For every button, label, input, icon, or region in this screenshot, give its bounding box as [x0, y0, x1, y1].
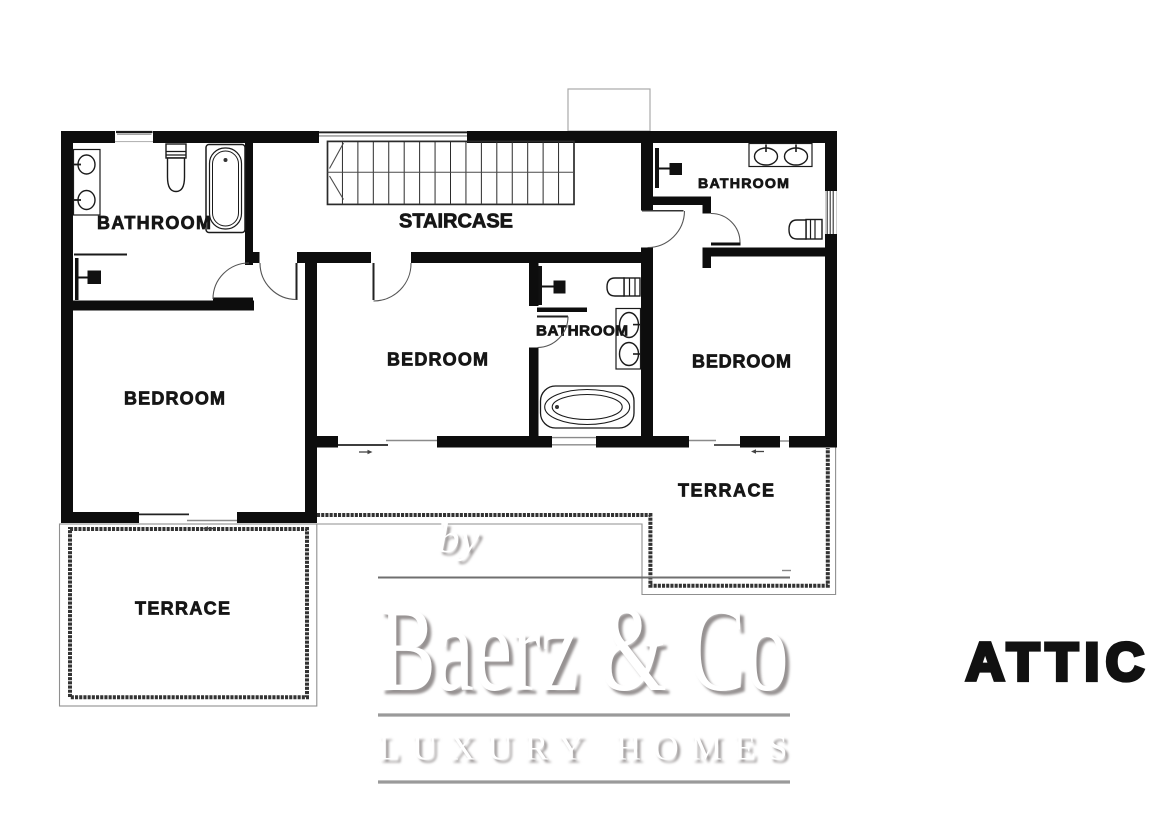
svg-text:Baerz & Co: Baerz & Co — [379, 582, 789, 717]
svg-text:BEDROOM: BEDROOM — [387, 350, 488, 370]
svg-text:BEDROOM: BEDROOM — [124, 389, 225, 409]
svg-text:BATHROOM: BATHROOM — [97, 213, 211, 233]
svg-text:TERRACE: TERRACE — [135, 599, 230, 619]
svg-text:TERRACE: TERRACE — [678, 481, 774, 501]
svg-text:BEDROOM: BEDROOM — [692, 352, 791, 372]
svg-text:ATTIC: ATTIC — [966, 633, 1144, 692]
svg-text:BATHROOM: BATHROOM — [698, 176, 789, 192]
svg-text:BATHROOM: BATHROOM — [536, 323, 628, 340]
svg-text:STAIRCASE: STAIRCASE — [399, 211, 513, 233]
svg-text:by: by — [438, 515, 481, 561]
